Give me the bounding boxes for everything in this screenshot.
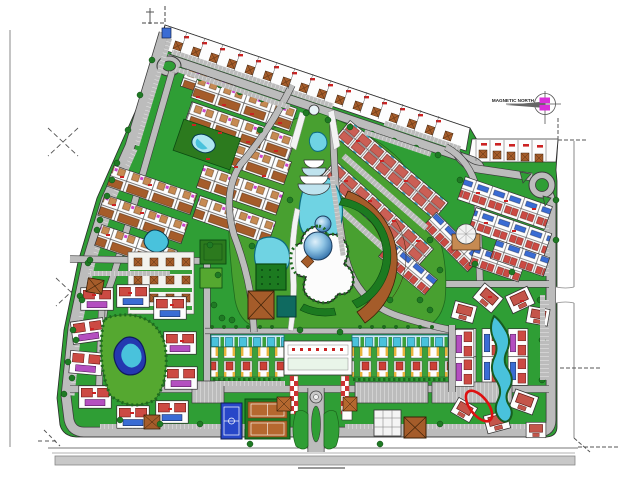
svg-text:MAGNETIC NORTH: MAGNETIC NORTH bbox=[492, 98, 535, 103]
